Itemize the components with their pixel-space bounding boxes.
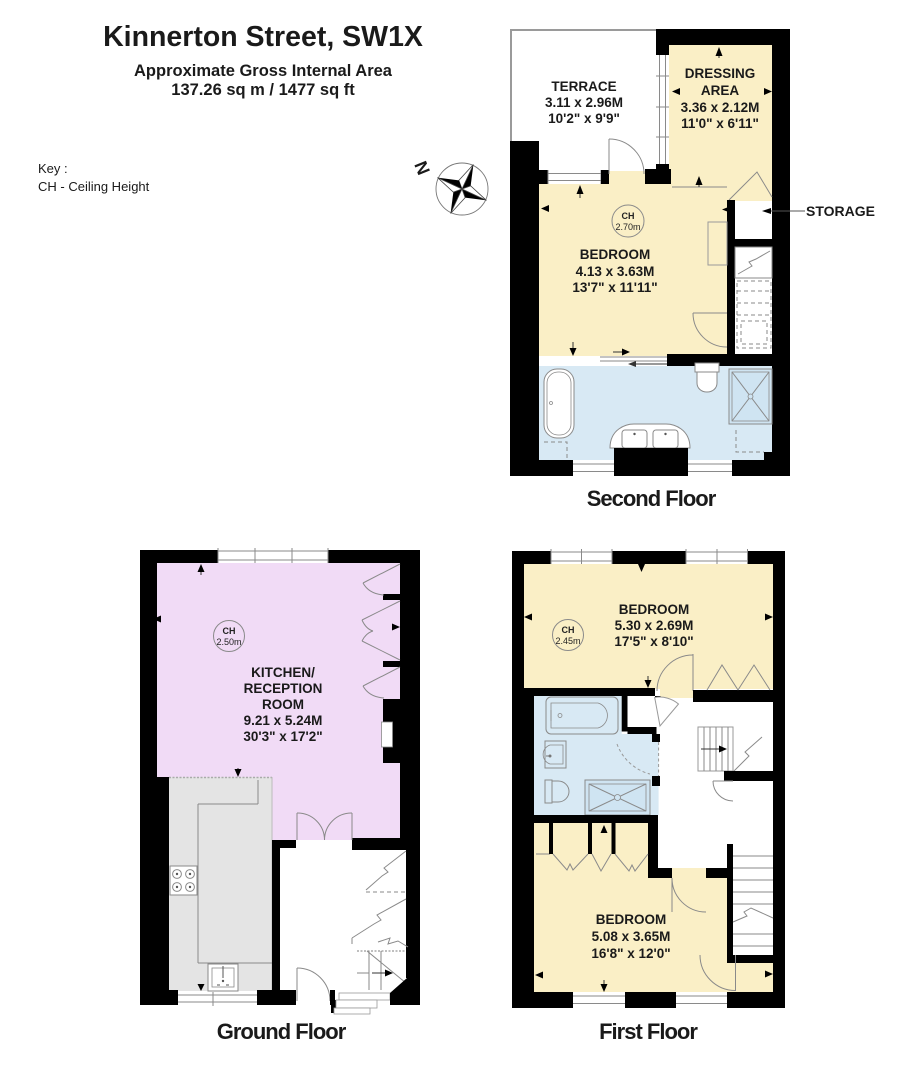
svg-text:Kinnerton Street, SW1X: Kinnerton Street, SW1X (103, 21, 423, 53)
svg-text:KITCHEN/: KITCHEN/ (251, 665, 315, 680)
svg-text:30'3" x 17'2": 30'3" x 17'2" (243, 729, 322, 744)
svg-text:BEDROOM: BEDROOM (580, 247, 651, 262)
svg-text:4.13 x 3.63M: 4.13 x 3.63M (576, 264, 655, 279)
svg-text:11'0" x 6'11": 11'0" x 6'11" (681, 116, 759, 131)
svg-text:5.30 x 2.69M: 5.30 x 2.69M (615, 618, 694, 633)
svg-text:Second Floor: Second Floor (587, 486, 717, 511)
svg-text:CH - Ceiling Height: CH - Ceiling Height (38, 179, 150, 194)
svg-text:2.45m: 2.45m (555, 636, 580, 646)
svg-text:BEDROOM: BEDROOM (596, 912, 667, 927)
svg-text:DRESSING: DRESSING (685, 66, 756, 81)
svg-text:CH: CH (562, 625, 575, 635)
svg-text:17'5" x 8'10": 17'5" x 8'10" (614, 634, 693, 649)
svg-text:13'7" x 11'11": 13'7" x 11'11" (572, 280, 657, 295)
svg-text:CH: CH (223, 626, 236, 636)
svg-text:3.11 x 2.96M: 3.11 x 2.96M (545, 95, 623, 110)
svg-text:Approximate Gross Internal Are: Approximate Gross Internal Area (134, 62, 393, 80)
svg-text:ROOM: ROOM (262, 697, 304, 712)
svg-text:Key :: Key : (38, 161, 68, 176)
svg-text:TERRACE: TERRACE (551, 79, 616, 94)
svg-text:STORAGE: STORAGE (806, 203, 875, 219)
svg-text:2.50m: 2.50m (216, 637, 241, 647)
svg-text:137.26 sq m / 1477 sq ft: 137.26 sq m / 1477 sq ft (171, 81, 355, 99)
svg-text:16'8" x 12'0": 16'8" x 12'0" (591, 946, 670, 961)
svg-text:RECEPTION: RECEPTION (244, 681, 323, 696)
svg-text:First Floor: First Floor (599, 1019, 698, 1044)
svg-text:BEDROOM: BEDROOM (619, 602, 690, 617)
svg-text:9.21 x 5.24M: 9.21 x 5.24M (244, 713, 323, 728)
svg-text:5.08 x 3.65M: 5.08 x 3.65M (592, 929, 671, 944)
svg-text:2.70m: 2.70m (615, 222, 640, 232)
svg-text:3.36 x 2.12M: 3.36 x 2.12M (681, 100, 760, 115)
svg-text:Ground Floor: Ground Floor (217, 1019, 347, 1044)
svg-text:CH: CH (622, 211, 635, 221)
svg-text:10'2" x 9'9": 10'2" x 9'9" (548, 111, 620, 126)
svg-text:AREA: AREA (701, 83, 740, 98)
